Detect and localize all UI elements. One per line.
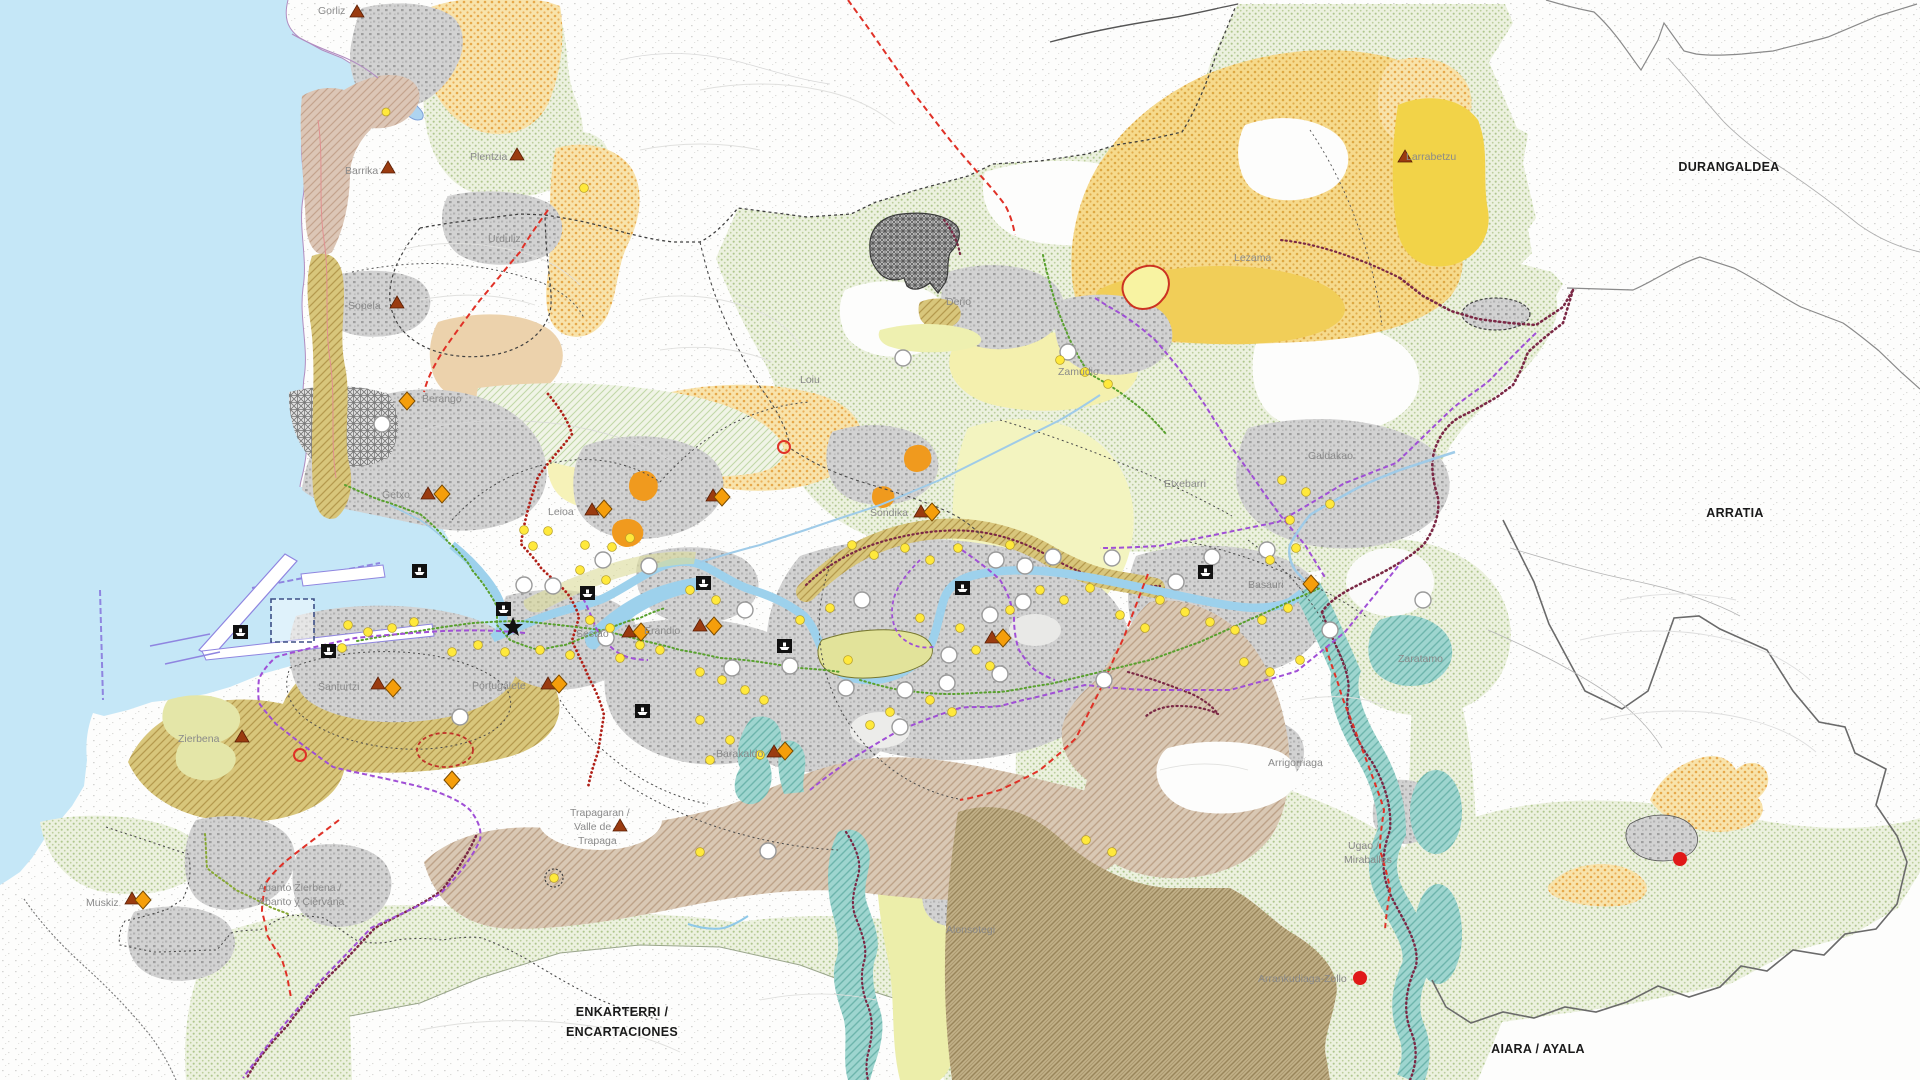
svg-text:Sondika: Sondika xyxy=(870,507,908,519)
svg-text:Sestao: Sestao xyxy=(576,628,609,640)
svg-text:ARRATIA: ARRATIA xyxy=(1706,506,1763,520)
svg-text:Gorliz: Gorliz xyxy=(318,5,345,17)
svg-text:Basauri: Basauri xyxy=(1248,579,1284,591)
svg-text:ENCARTACIONES: ENCARTACIONES xyxy=(566,1025,678,1039)
svg-text:Valle de: Valle de xyxy=(574,821,611,833)
svg-text:Zamudio: Zamudio xyxy=(1058,366,1099,378)
svg-text:Etxebarri: Etxebarri xyxy=(1164,478,1206,490)
svg-text:ENKARTERRI /: ENKARTERRI / xyxy=(576,1005,669,1019)
svg-text:Berango: Berango xyxy=(422,393,462,405)
svg-text:Erandio: Erandio xyxy=(644,625,680,637)
svg-text:Alonsotegi: Alonsotegi xyxy=(946,924,995,936)
svg-text:Ugao /: Ugao / xyxy=(1348,840,1379,852)
svg-text:Arrankudiaga-Zollo: Arrankudiaga-Zollo xyxy=(1258,973,1347,985)
svg-text:Plentzia: Plentzia xyxy=(470,151,508,163)
svg-text:Lezama: Lezama xyxy=(1234,252,1272,264)
svg-text:Sopela: Sopela xyxy=(348,300,381,312)
svg-text:Larrabetzu: Larrabetzu xyxy=(1406,151,1456,163)
svg-text:DURANGALDEA: DURANGALDEA xyxy=(1678,160,1779,174)
svg-text:Trapaga: Trapaga xyxy=(578,835,617,847)
svg-text:Derio: Derio xyxy=(946,296,971,308)
svg-text:Muskiz: Muskiz xyxy=(86,897,119,909)
svg-text:Galdakao: Galdakao xyxy=(1308,450,1353,462)
svg-text:Zierbena: Zierbena xyxy=(178,733,220,745)
svg-text:Barrika: Barrika xyxy=(345,165,378,177)
svg-text:Zaratamo: Zaratamo xyxy=(1398,653,1443,665)
svg-text:Trapagaran /: Trapagaran / xyxy=(570,807,630,819)
svg-text:Portugalete: Portugalete xyxy=(472,680,526,692)
svg-text:Getxo: Getxo xyxy=(382,489,410,501)
svg-text:Barakaldo: Barakaldo xyxy=(716,748,763,760)
svg-text:AIARA / AYALA: AIARA / AYALA xyxy=(1491,1042,1585,1056)
svg-text:Loiu: Loiu xyxy=(800,374,820,386)
svg-text:Miraballes: Miraballes xyxy=(1344,854,1392,866)
svg-text:Abanto Zierbena /: Abanto Zierbena / xyxy=(258,882,342,894)
svg-text:Arrigorriaga: Arrigorriaga xyxy=(1268,757,1323,769)
svg-text:Urduliz: Urduliz xyxy=(488,233,521,245)
svg-text:Leioa: Leioa xyxy=(548,506,574,518)
svg-text:Abanto y Ciérvana: Abanto y Ciérvana xyxy=(258,896,345,908)
svg-text:Santurtzi: Santurtzi xyxy=(318,681,359,693)
